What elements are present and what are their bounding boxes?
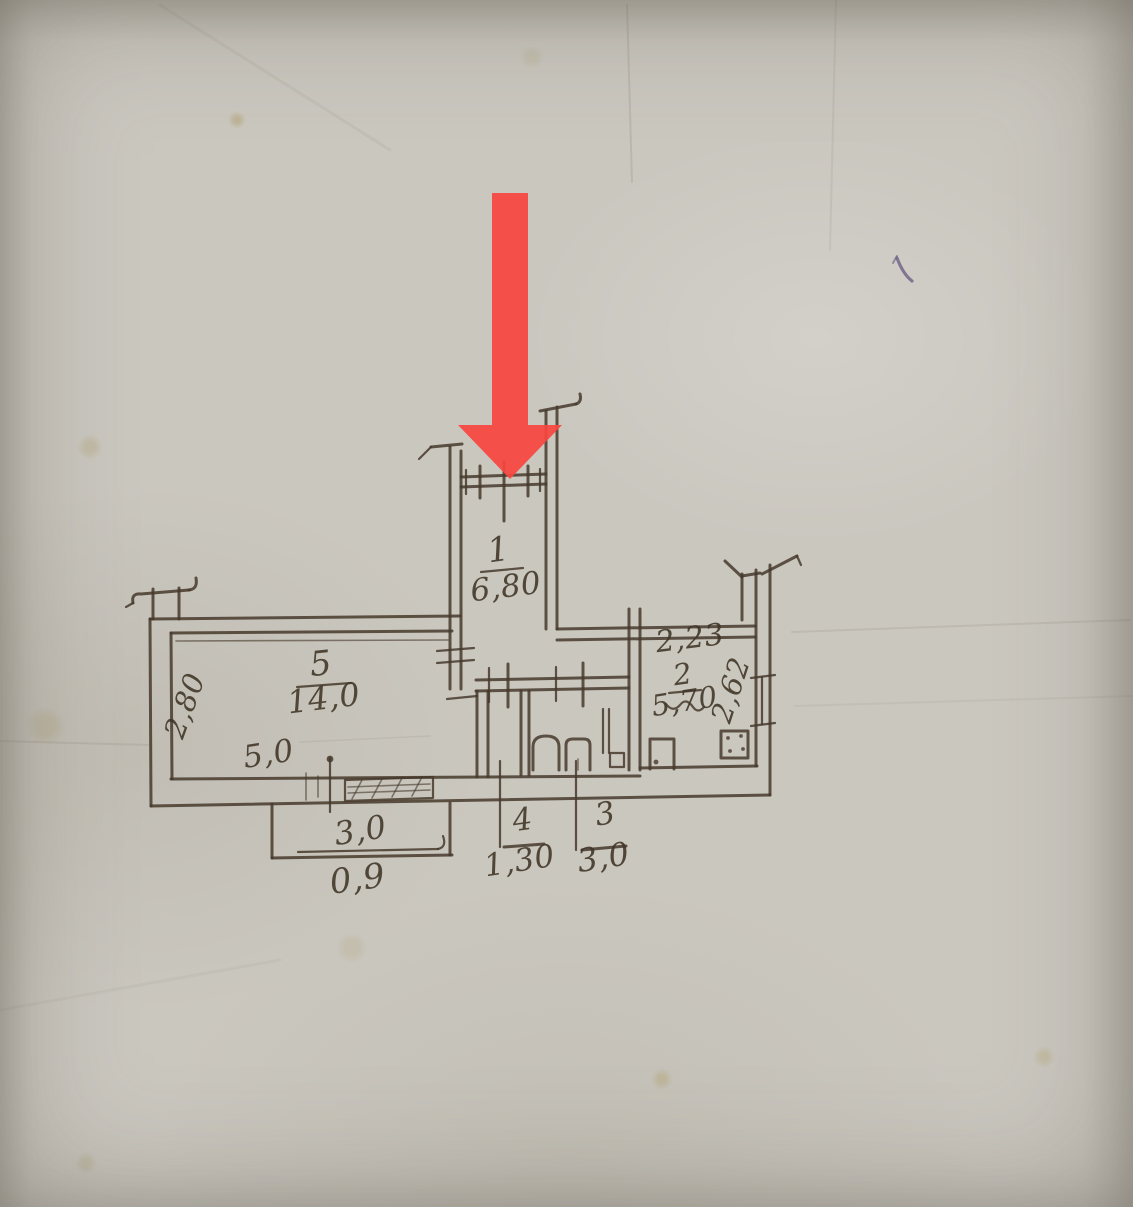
labels: 1 6,80 5 14,0 2,80 5,0 2,23 2 5,70 2,62 … <box>157 529 757 903</box>
chimney-mark-right-icon <box>725 556 801 620</box>
floor-plan-drawing: 1 6,80 5 14,0 2,80 5,0 2,23 2 5,70 2,62 … <box>0 0 1133 1207</box>
bathroom-walls <box>476 663 629 777</box>
sink-icon <box>566 739 590 770</box>
room1-area-label: 6,80 <box>468 565 543 609</box>
room4-dim-label: 1,30 <box>482 838 558 885</box>
room2-width-dim-label: 2,23 <box>653 617 727 660</box>
scanned-paper: 1 6,80 5 14,0 2,80 5,0 2,23 2 5,70 2,62 … <box>0 0 1133 1207</box>
room5-width-dim-label: 5,0 <box>241 732 297 776</box>
kitchen-cabinet-icon <box>650 739 674 769</box>
water-column-icon <box>603 709 624 767</box>
room5-area-label: 14,0 <box>285 675 362 722</box>
stove-icon <box>721 731 748 758</box>
ink-smudge-purple <box>893 256 912 281</box>
balcony-width-dim-label: 3,0 <box>331 807 389 853</box>
room3-number-label: 3 <box>592 795 618 834</box>
room1-number-label: 1 <box>485 529 512 572</box>
room3-dim-label: 3,0 <box>574 834 632 880</box>
chimney-mark-left-icon <box>126 578 196 619</box>
balcony-depth-dim-label: 0,9 <box>327 855 388 902</box>
room2-depth-dim-label: 2,62 <box>704 653 757 728</box>
room5-depth-dim-label: 2,80 <box>157 668 212 743</box>
room1-door-ticks <box>437 648 477 699</box>
room4-number-label: 4 <box>509 801 535 840</box>
toilet-icon <box>533 736 559 770</box>
paper-creases <box>0 0 1133 1010</box>
highlight-arrow <box>458 193 562 479</box>
balcony-window-sill <box>345 777 433 801</box>
